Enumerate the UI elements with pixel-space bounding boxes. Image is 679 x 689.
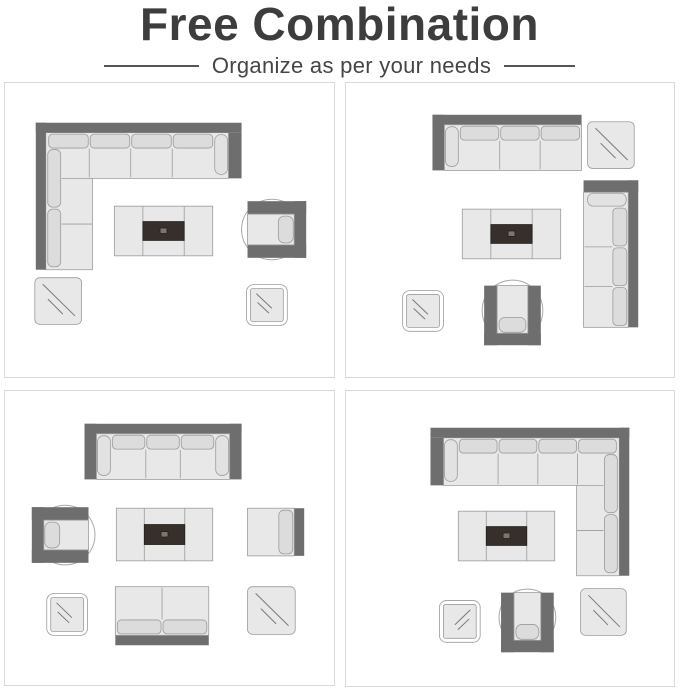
side-table-large (581, 589, 627, 636)
subtitle-rule-right (504, 65, 575, 67)
armless-chair (248, 508, 305, 556)
subtitle-row: Organize as per your needs (0, 53, 679, 79)
coffee-table (458, 511, 554, 561)
armchair (499, 589, 556, 652)
subtitle: Organize as per your needs (212, 53, 491, 79)
layout-panel-3 (4, 390, 335, 686)
side-table-small (403, 291, 444, 332)
sofa (432, 115, 581, 171)
coffee-table (462, 209, 560, 259)
armchair (482, 280, 543, 345)
sofa (584, 180, 639, 327)
loveseat (115, 587, 208, 646)
subtitle-rule-left (104, 65, 199, 67)
sofa (85, 424, 242, 480)
coffee-table (116, 508, 212, 561)
side-table-large (248, 587, 296, 635)
armchair (242, 199, 307, 260)
header: Free Combination Organize as per your ne… (0, 0, 679, 79)
side-table-large (35, 278, 82, 325)
layout-panel-1 (4, 82, 335, 378)
infographic: Free Combination Organize as per your ne… (0, 0, 679, 689)
layout-panel-4 (345, 390, 675, 687)
armchair (32, 505, 95, 565)
side-table-small (47, 594, 88, 636)
side-table-small (439, 601, 480, 643)
side-table-large (588, 122, 635, 169)
layout-panel-2 (345, 82, 675, 378)
page-title: Free Combination (0, 1, 679, 48)
side-table-small (247, 285, 288, 326)
coffee-table (114, 206, 212, 256)
